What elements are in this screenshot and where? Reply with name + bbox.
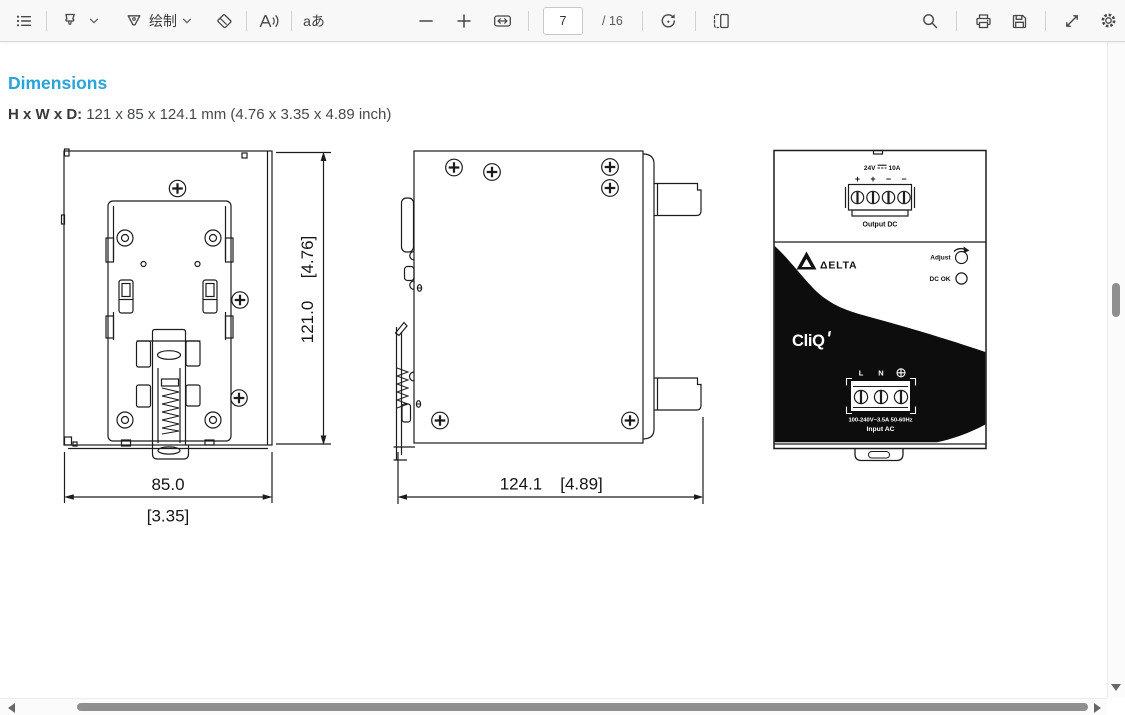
read-aloud-icon (258, 12, 280, 30)
din-clip-tab (855, 449, 903, 461)
rotate-button[interactable] (655, 6, 683, 36)
save-icon (1010, 12, 1029, 30)
dc-ok-led-icon (956, 273, 967, 284)
toolbar-separator (956, 11, 957, 31)
draw-button[interactable]: 绘制 (124, 6, 192, 36)
scroll-down-icon[interactable] (1111, 684, 1121, 691)
read-aloud-button[interactable] (255, 6, 283, 36)
brand-label: ΔELTA (820, 260, 857, 272)
toolbar-separator (642, 11, 643, 31)
input-ac-label: Input AC (866, 426, 894, 433)
dimensions-label: H x W x D: (8, 106, 82, 123)
fit-to-width-button[interactable] (488, 6, 516, 36)
input-line-label: L (859, 369, 864, 378)
draw-label: 绘制 (149, 11, 177, 31)
toolbar-separator (46, 11, 47, 31)
settings-button[interactable] (1094, 6, 1122, 36)
output-dc-label: Output DC (863, 222, 898, 229)
page-count-label: / 16 (602, 14, 623, 28)
search-button[interactable] (916, 6, 944, 36)
toolbar-separator (1045, 11, 1046, 31)
outline-button[interactable] (10, 6, 38, 36)
page-title: Dimensions (8, 73, 107, 94)
outline-icon (15, 12, 33, 30)
toolbar-separator (291, 11, 292, 31)
height-dim-in: [4.76] (298, 236, 317, 279)
zoom-out-button[interactable] (412, 6, 440, 36)
chevron-down-icon (89, 17, 99, 25)
fit-to-width-icon (493, 12, 512, 30)
pdf-toolbar: 绘制 aあ (0, 0, 1125, 42)
toolbar-file-group (916, 0, 1122, 41)
polarity-minus-2: − (901, 174, 906, 184)
search-icon (921, 12, 939, 30)
toolbar-separator (695, 11, 696, 31)
dc-symbol-icon (878, 165, 887, 168)
output-current-label: 10A (889, 165, 901, 172)
dimensions-line: H x W x D:121 x 85 x 124.1 mm (4.76 x 3.… (8, 106, 391, 123)
horizontal-scrollbar[interactable] (0, 698, 1107, 715)
input-neutral-label: N (878, 369, 883, 378)
front-view-drawing: 24V 10A + + − − Output DC ΔELTA Adjust D… (765, 145, 995, 470)
translate-icon: aあ (303, 11, 325, 31)
side-view-drawing: 124.1 [4.89] (390, 145, 720, 515)
save-button[interactable] (1005, 6, 1033, 36)
depth-dim-mm: 124.1 (500, 475, 543, 494)
translate-button[interactable]: aあ (300, 6, 328, 36)
toolbar-annotation-group: 绘制 aあ (10, 0, 328, 41)
page-view-icon (712, 12, 731, 30)
highlighter-icon (60, 12, 79, 29)
width-dim-mm: 85.0 (151, 475, 184, 494)
zoom-out-icon (417, 12, 435, 30)
draw-pen-icon (124, 12, 144, 29)
highlighter-button[interactable] (55, 6, 83, 36)
vertical-scrollbar[interactable] (1107, 0, 1125, 698)
pdf-viewer-window: 绘制 aあ (0, 0, 1125, 715)
vertical-scrollbar-thumb[interactable] (1112, 283, 1120, 317)
page-number-input[interactable] (543, 7, 583, 35)
rotate-icon (659, 12, 678, 30)
dimensions-value: 121 x 85 x 124.1 mm (4.76 x 3.35 x 4.89 … (86, 106, 391, 123)
input-rating-label: 100-240V~3.5A 50-60Hz (848, 418, 912, 424)
scroll-left-icon[interactable] (8, 703, 15, 713)
toolbar-separator (528, 11, 529, 31)
eraser-icon (214, 12, 234, 30)
print-button[interactable] (969, 6, 997, 36)
input-terminal-block (847, 379, 916, 414)
page-view-button[interactable] (708, 6, 736, 36)
adjust-label: Adjust (930, 255, 951, 262)
depth-dim-in: [4.89] (560, 475, 603, 494)
back-view-drawing: 121.0 [4.76] 85.0 [3.35] (55, 145, 345, 535)
scroll-right-icon[interactable] (1094, 703, 1101, 713)
ground-icon (897, 369, 905, 377)
horizontal-scrollbar-thumb[interactable] (77, 703, 1088, 711)
toolbar-separator (246, 11, 247, 31)
adjust-knob-icon (954, 247, 970, 264)
phillips-screw-icon (172, 183, 245, 403)
print-icon (974, 12, 993, 30)
highlighter-options-button[interactable] (86, 6, 102, 36)
zoom-in-icon (455, 12, 473, 30)
delta-logo-icon (797, 252, 817, 270)
zoom-in-button[interactable] (450, 6, 478, 36)
height-dim-mm: 121.0 (298, 301, 317, 344)
polarity-plus-1: + (855, 174, 860, 184)
fullscreen-button[interactable] (1058, 6, 1086, 36)
phillips-screw-icon (435, 162, 636, 426)
dc-ok-label: DC OK (930, 276, 951, 283)
polarity-plus-2: + (870, 174, 875, 184)
vertical-scrollbar-track[interactable] (1107, 41, 1125, 698)
eraser-button[interactable] (210, 6, 238, 36)
output-voltage-label: 24V (864, 165, 876, 172)
chevron-down-icon (182, 17, 192, 25)
toolbar-page-group: / 16 (412, 0, 736, 41)
pdf-page: Dimensions H x W x D:121 x 85 x 124.1 mm… (0, 42, 1107, 698)
fullscreen-icon (1063, 12, 1081, 30)
gear-icon (1099, 11, 1118, 30)
polarity-minus-1: − (886, 174, 891, 184)
width-dim-in: [3.35] (147, 507, 190, 526)
cliq-logo: CliQ (792, 332, 825, 350)
